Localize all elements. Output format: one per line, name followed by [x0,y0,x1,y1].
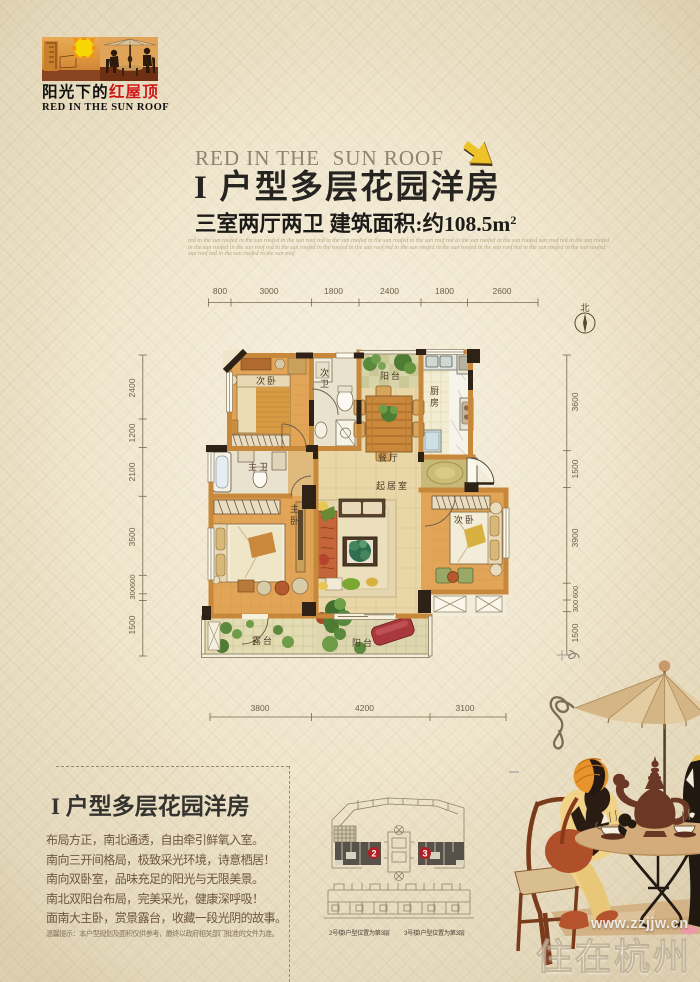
svg-text:1200: 1200 [127,423,137,442]
svg-text:1500: 1500 [570,623,580,642]
svg-text:800: 800 [213,286,227,296]
svg-text:卫: 卫 [320,379,329,389]
svg-text:房: 房 [430,397,439,408]
svg-text:3800: 3800 [251,703,270,713]
svg-text:3100: 3100 [456,703,475,713]
svg-text:2600: 2600 [493,286,512,296]
svg-text:2100: 2100 [127,462,137,481]
svg-text:卧: 卧 [290,515,299,526]
svg-text:4200: 4200 [355,703,374,713]
svg-text:北: 北 [580,303,589,313]
svg-text:3: 3 [422,849,427,859]
svg-text:主卫: 主卫 [248,461,270,472]
svg-text:露台: 露台 [252,635,274,646]
svg-text:2: 2 [371,849,376,859]
svg-text:300: 300 [571,600,580,613]
svg-text:1500: 1500 [570,459,580,478]
svg-text:1500: 1500 [127,615,137,634]
svg-text:次卧: 次卧 [454,514,476,525]
svg-text:3900: 3900 [570,528,580,547]
svg-text:主: 主 [290,503,299,514]
svg-text:2400: 2400 [127,378,137,397]
svg-text:厨: 厨 [430,386,439,396]
svg-text:阳台: 阳台 [380,370,402,381]
svg-text:阳台: 阳台 [352,637,374,648]
svg-text:次卧: 次卧 [256,375,278,386]
svg-text:2400: 2400 [380,286,399,296]
svg-text:3600: 3600 [570,392,580,411]
svg-text:起居室: 起居室 [376,480,409,491]
svg-text:1800: 1800 [435,286,454,296]
svg-text:餐厅: 餐厅 [378,452,400,463]
svg-text:3000: 3000 [260,286,279,296]
svg-text:次: 次 [320,367,329,378]
svg-text:300600: 300600 [128,574,137,599]
svg-text:600: 600 [571,586,580,599]
svg-text:3500: 3500 [127,527,137,546]
svg-text:1800: 1800 [324,286,343,296]
